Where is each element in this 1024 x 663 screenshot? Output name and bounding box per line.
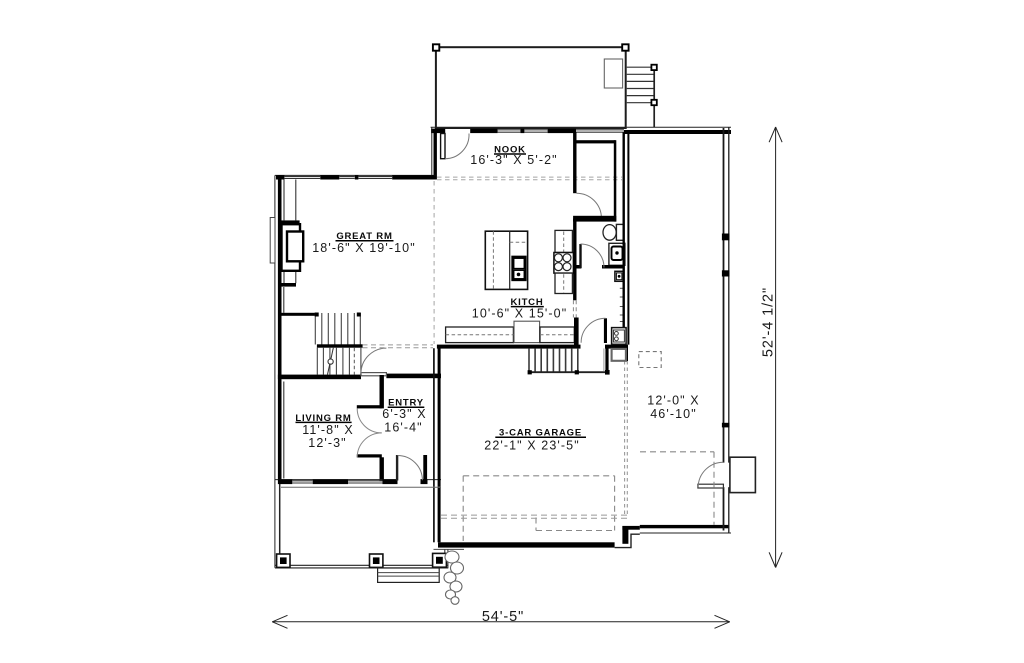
svg-text:10'-6" X 15'-0": 10'-6" X 15'-0" <box>472 306 567 320</box>
svg-text:12'-3": 12'-3" <box>308 436 346 450</box>
svg-text:6'-3" X: 6'-3" X <box>382 407 426 421</box>
svg-text:52'-4 1/2": 52'-4 1/2" <box>761 287 777 357</box>
svg-text:22'-1" X 23'-5": 22'-1" X 23'-5" <box>484 438 579 452</box>
svg-text:12'-0" X: 12'-0" X <box>647 393 699 407</box>
svg-text:16'-3" X 5'-2": 16'-3" X 5'-2" <box>470 153 557 167</box>
svg-text:46'-10": 46'-10" <box>650 407 697 421</box>
svg-text:54'-5": 54'-5" <box>482 609 524 625</box>
svg-text:16'-4": 16'-4" <box>384 421 422 435</box>
svg-text:18'-6" X 19'-10": 18'-6" X 19'-10" <box>312 241 416 255</box>
